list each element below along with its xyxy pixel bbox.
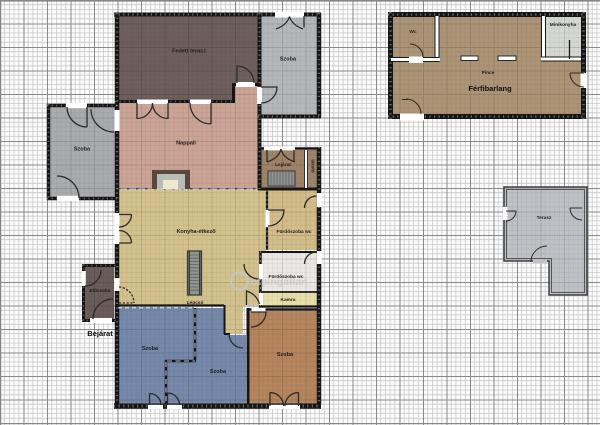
- svg-text:Szoba: Szoba: [280, 57, 297, 63]
- svg-text:Konyha-étkező: Konyha-étkező: [176, 229, 216, 235]
- svg-text:Szoba: Szoba: [142, 346, 159, 352]
- svg-text:tároló: tároló: [310, 159, 316, 172]
- svg-text:Szoba: Szoba: [277, 352, 294, 358]
- svg-text:Wc: Wc: [409, 29, 417, 35]
- svg-text:Minikonyha: Minikonyha: [550, 22, 577, 28]
- svg-text:Férfibarlang: Férfibarlang: [468, 84, 512, 93]
- svg-text:Fürdőszoba wc: Fürdőszoba wc: [269, 274, 304, 280]
- svg-text:Nappali: Nappali: [176, 141, 196, 147]
- svg-text:Terasz: Terasz: [537, 215, 552, 221]
- svg-text:Fürdőszoba wc: Fürdőszoba wc: [277, 229, 312, 235]
- svg-text:Lépcső: Lépcső: [187, 300, 204, 306]
- svg-text:Lejárat: Lejárat: [275, 162, 291, 168]
- svg-text:Fedett terasz: Fedett terasz: [172, 49, 206, 55]
- svg-text:Szoba: Szoba: [210, 369, 227, 375]
- svg-text:Bejárat: Bejárat: [87, 329, 113, 338]
- svg-text:Előszoba: Előszoba: [89, 288, 110, 294]
- svg-text:Szoba: Szoba: [74, 147, 91, 153]
- svg-text:Pince: Pince: [482, 70, 495, 76]
- svg-text:Kamra: Kamra: [281, 297, 296, 303]
